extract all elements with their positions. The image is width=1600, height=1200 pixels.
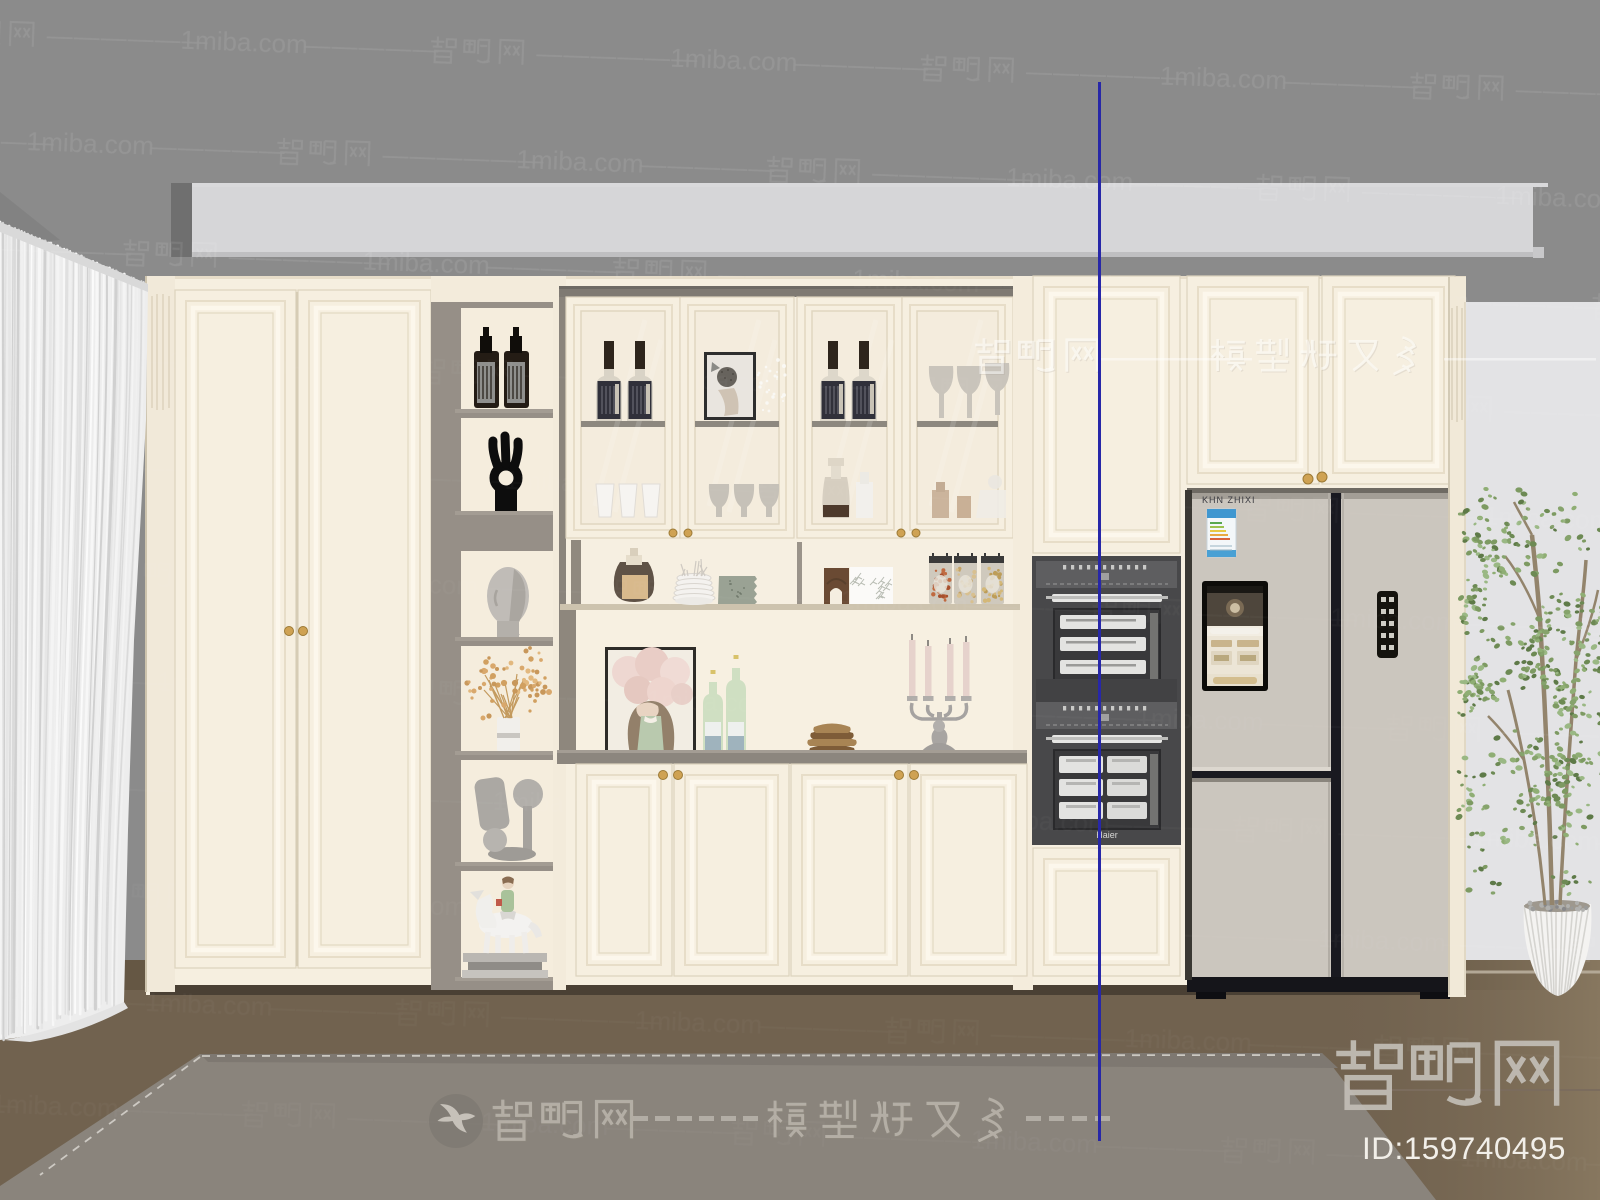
svg-text:1miba.com: 1miba.com — [26, 126, 154, 161]
svg-text:1miba.com: 1miba.com — [994, 483, 1122, 518]
svg-text:—————: ————— — [1260, 707, 1396, 742]
svg-text:1miba.com: 1miba.com — [350, 566, 478, 601]
svg-text:—————: ————— — [770, 689, 906, 724]
svg-text:—————: ————— — [486, 250, 622, 285]
svg-text:—————: ————— — [115, 1093, 251, 1128]
svg-text:—————: ————— — [1442, 927, 1578, 962]
svg-text:1miba.com: 1miba.com — [1318, 923, 1446, 958]
svg-text:—————: ————— — [1454, 607, 1590, 642]
svg-text:—————: ————— — [150, 131, 286, 166]
svg-text:1miba.com: 1miba.com — [1472, 822, 1600, 857]
svg-text:1miba.com: 1miba.com — [1159, 61, 1287, 96]
svg-text:—————: ————— — [127, 772, 263, 807]
svg-text:1miba.com: 1miba.com — [840, 584, 968, 619]
svg-text:1miba.com: 1miba.com — [362, 245, 490, 280]
svg-text:1miba.com: 1miba.com — [145, 987, 273, 1022]
svg-text:ID:159740495: ID:159740495 — [1362, 1130, 1566, 1166]
svg-text:—————: ————— — [1584, 1147, 1600, 1182]
svg-text:—————: ————— — [794, 47, 930, 82]
svg-text:1miba.com: 1miba.com — [339, 887, 467, 922]
svg-text:1miba.com: 1miba.com — [982, 804, 1110, 839]
svg-text:1miba.com: 1miba.com — [646, 684, 774, 719]
svg-text:—————: ————— — [758, 1010, 894, 1045]
svg-text:1miba.com: 1miba.com — [1495, 180, 1600, 215]
svg-text:—————: ————— — [1094, 1129, 1230, 1164]
svg-text:1miba.com: 1miba.com — [15, 447, 143, 482]
svg-text:1miba.com: 1miba.com — [658, 363, 786, 398]
svg-text:—————: ————— — [0, 232, 132, 267]
svg-text:—————: ————— — [1248, 1027, 1384, 1062]
svg-text:——————: —————— — [1492, 715, 1600, 751]
svg-text:1miba.com: 1miba.com — [670, 43, 798, 78]
svg-text:—————: ————— — [1272, 386, 1408, 421]
svg-text:1miba.com: 1miba.com — [1006, 162, 1134, 197]
svg-text:1miba.com: 1miba.com — [3, 768, 131, 803]
svg-text:1miba.com: 1miba.com — [970, 1124, 1098, 1159]
svg-text:—————: ————— — [0, 874, 109, 909]
svg-text:—————: ————— — [1283, 65, 1419, 100]
svg-text:1miba.com: 1miba.com — [1136, 702, 1264, 737]
svg-text:1miba.com: 1miba.com — [1341, 281, 1469, 316]
svg-text:—————: ————— — [281, 671, 417, 706]
svg-text:1miba.com: 1miba.com — [168, 345, 296, 380]
svg-text:1miba.com: 1miba.com — [852, 263, 980, 298]
svg-text:—————: ————— — [1465, 286, 1600, 321]
svg-text:—————: ————— — [952, 910, 1088, 945]
svg-text:1miba.com: 1miba.com — [180, 25, 308, 60]
svg-text:1miba.com: 1miba.com — [1484, 501, 1600, 536]
svg-text:—————: ————— — [640, 149, 776, 184]
svg-text:—————: ————— — [463, 892, 599, 927]
svg-text:—————: ————— — [628, 469, 764, 504]
svg-text:—————: ————— — [292, 350, 428, 385]
svg-text:—————: ————— — [0, 553, 121, 588]
svg-text:1miba.com: 1miba.com — [516, 144, 644, 179]
svg-text:1miba.com: 1miba.com — [1124, 1023, 1252, 1058]
svg-text:—————: ————— — [304, 29, 440, 64]
svg-text:—————: ————— — [269, 992, 405, 1027]
svg-text:—————: ————— — [782, 368, 918, 403]
svg-text:—————: ————— — [976, 268, 1112, 303]
svg-text:1miba.com: 1miba.com — [1148, 381, 1276, 416]
svg-text:—————: ————— — [138, 451, 274, 486]
svg-text:—————: ————— — [1106, 808, 1242, 843]
svg-text:1miba.com: 1miba.com — [504, 465, 632, 500]
svg-text:1miba.com: 1miba.com — [1330, 602, 1458, 637]
svg-text:—————: ————— — [1118, 487, 1254, 522]
svg-text:1miba.com: 1miba.com — [828, 905, 956, 940]
svg-text:1miba.com: 1miba.com — [492, 786, 620, 821]
svg-text:—————: ————— — [1130, 167, 1266, 202]
svg-text:—————: ————— — [1596, 826, 1600, 861]
svg-text:—————: ————— — [616, 790, 752, 825]
svg-text:1miba.com: 1miba.com — [0, 1088, 119, 1123]
svg-text:—————: ————— — [474, 571, 610, 606]
svg-text:1miba.com: 1miba.com — [157, 666, 285, 701]
svg-text:————: ———— — [1444, 336, 1596, 378]
svg-text:—————: ————— — [964, 589, 1100, 624]
svg-text:1miba.com: 1miba.com — [635, 1005, 763, 1040]
